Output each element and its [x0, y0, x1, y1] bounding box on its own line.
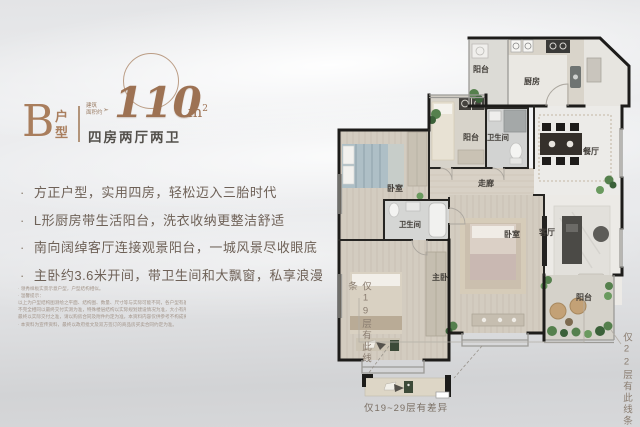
bullet-icon: ·	[20, 240, 25, 255]
unit-letter: B	[22, 100, 54, 144]
feature-list: ·方正户型，实用四房，轻松迈入三胎时代 ·L形厨房带生活阳台，洗衣收纳更整洁舒适…	[20, 182, 323, 292]
label-living: 客厅	[538, 227, 555, 237]
layout-summary: 四房两厅两卫	[88, 126, 181, 146]
label-balcony-bottom: 阳台	[576, 292, 592, 302]
feature-text: 主卧约3.6米开间，带卫生间和大飘窗，私享浪漫	[34, 265, 324, 284]
disclaimer-line: · 本资料为宣传资料，最终以政府批文及双方签订的商品房买卖合同约定为准。	[18, 321, 186, 328]
disclaimer-line: · 温馨提示：	[18, 292, 186, 299]
disclaimer-line: 不完全相同以最终交付实测为准，特殊楼层结构以实际规划建设情况为准，大小有所差异。	[18, 306, 186, 313]
annotation-floors-19-29: 仅19~29层有差异	[364, 400, 448, 414]
label-bathroom: 卫生间	[487, 133, 509, 142]
label-master-bathroom: 卫生间	[399, 220, 421, 229]
page-root: B 户型 建筑 面积约 ➣ 110 m2 四房两厅两卫 ·方正户型，实用四房，轻…	[0, 0, 640, 427]
label-bedroom-left: 卧室	[387, 183, 403, 193]
floorplan: 阳台 厨房 阳台 卫生间 餐厅 卧室 走廊 卫生间 卧室 客厅 主卧 阳台	[332, 28, 634, 427]
area-unit-letter: m	[188, 103, 202, 121]
area-arrow-icon: ➣	[103, 106, 109, 114]
annotation-floor19: 仅19层有此线条	[344, 281, 372, 367]
floorplan-svg: 阳台 厨房 阳台 卫生间 餐厅 卧室 走廊 卫生间 卧室 客厅 主卧 阳台	[332, 28, 634, 427]
bullet-icon: ·	[20, 213, 25, 228]
feature-item: ·南向阔绰客厅连接观景阳台，一城风景尽收眼底	[20, 237, 323, 256]
label-kitchen: 厨房	[524, 76, 540, 86]
label-balcony-top: 阳台	[473, 64, 489, 74]
area-unit-exponent: 2	[202, 104, 208, 114]
floor-variant-detail	[362, 374, 451, 398]
unit-type-label: 户型	[55, 109, 71, 140]
label-master-bedroom: 主卧	[432, 272, 448, 282]
area-prefix-line2: 面积约	[86, 110, 103, 117]
label-corridor: 走廊	[477, 178, 494, 188]
feature-text: 方正户型，实用四房，轻松迈入三胎时代	[34, 182, 277, 201]
room-entry	[584, 38, 629, 106]
room-kitchen	[508, 38, 584, 106]
header-divider	[78, 106, 80, 142]
disclaimer-line: 以上为户型结构图测绘之平面、结构图、数量、尺寸等与实际可能不同，各户型有差异存在…	[18, 299, 186, 306]
label-laundry-balcony: 阳台	[463, 132, 479, 142]
label-bedroom-mid: 卧室	[504, 229, 520, 239]
feature-text: 南向阔绰客厅连接观景阳台，一城风景尽收眼底	[34, 237, 318, 256]
disclaimer-line: 最终以实际交付之准，请以购房合同及附件约定为准，本资料内容仅供参考不构成要约或承…	[18, 313, 186, 320]
feature-text: L形厨房带生活阳台，洗衣收纳更整洁舒适	[34, 210, 285, 229]
disclaimer-line: · 领秀样板实景示意户型，户型结构相似。	[18, 285, 186, 292]
bullet-icon: ·	[20, 185, 25, 200]
feature-item: ·方正户型，实用四房，轻松迈入三胎时代	[20, 182, 323, 201]
feature-item: ·主卧约3.6米开间，带卫生间和大飘窗，私享浪漫	[20, 265, 323, 284]
room-bedroom-mid	[449, 195, 544, 333]
area-prefix: 建筑 面积约	[86, 103, 103, 118]
area-unit: m2	[188, 103, 208, 121]
feature-item: ·L形厨房带生活阳台，洗衣收纳更整洁舒适	[20, 210, 323, 229]
bullet-icon: ·	[20, 268, 25, 283]
disclaimer: · 领秀样板实景示意户型，户型结构相似。 · 温馨提示： 以上为户型结构图测绘之…	[18, 285, 186, 328]
annotation-floor22: 仅22层有此线条	[619, 332, 633, 427]
label-dining: 餐厅	[582, 146, 599, 156]
